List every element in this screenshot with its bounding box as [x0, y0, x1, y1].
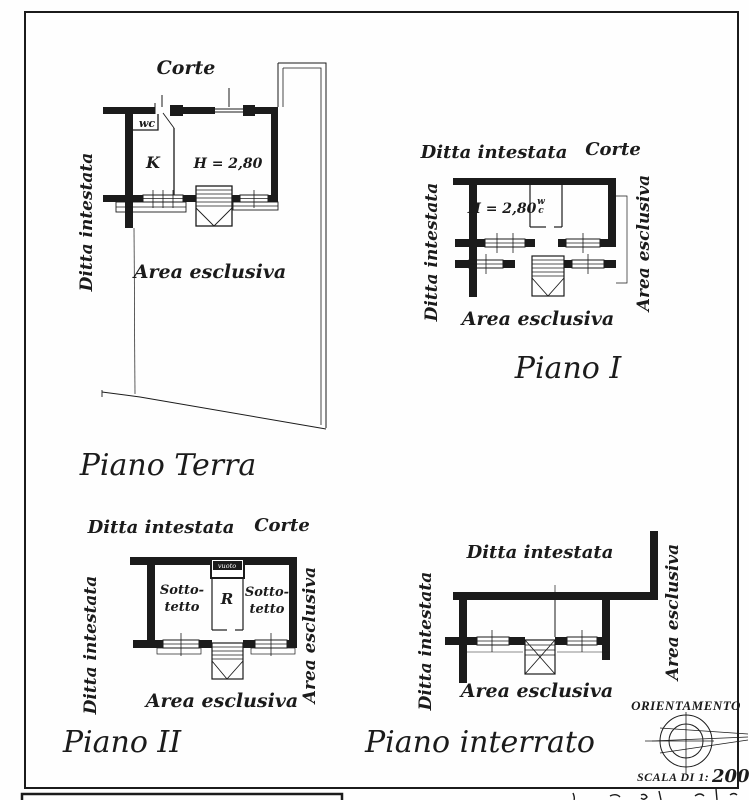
ditta-intestata-left-interrato: Ditta intestata [416, 572, 436, 712]
staircase-piano-interrato [525, 640, 555, 674]
vuoto-label: vuoto [218, 562, 236, 570]
wc-label-primo-line2: c [538, 206, 544, 216]
floor-plan-piano-secondo: Ditta intestata Corte vuoto Sotto- tetto… [62, 515, 320, 760]
ceiling-height-label-terra: H = 2,80 [193, 156, 263, 172]
bottom-cropped-handwriting [573, 789, 737, 800]
scale-label: SCALA DI 1: [637, 770, 709, 784]
staircase-piano-secondo [212, 643, 243, 679]
sottotetto-left-line1: Sotto- [160, 583, 204, 598]
ditta-intestata-top-primo: Ditta intestata [420, 142, 568, 163]
floor-plan-piano-interrato: Ditta intestata Ditta intestata Area esc… [364, 531, 683, 760]
sottotetto-right-line2: tetto [250, 602, 285, 617]
area-esclusiva-bottom-interrato: Area esclusiva [459, 680, 613, 702]
area-esclusiva-right-secondo: Area esclusiva [300, 567, 320, 705]
ditta-intestata-top-secondo: Ditta intestata [87, 517, 235, 538]
floor-plan-piano-terra: Corte wc K H = 2,80 Ditta intestata Area… [77, 57, 326, 483]
area-esclusiva-right-interrato: Area esclusiva [663, 544, 683, 682]
ditta-intestata-left-secondo: Ditta intestata [81, 576, 101, 716]
corte-label-primo: Corte [585, 139, 641, 160]
plan-title-piano-primo: Piano I [514, 351, 623, 386]
plan-title-piano-interrato: Piano interrato [364, 725, 595, 760]
ditta-intestata-top-interrato: Ditta intestata [466, 542, 614, 563]
ceiling-height-label-primo: H = 2,80 [467, 201, 537, 217]
floor-plan-drawing: Corte wc K H = 2,80 Ditta intestata Area… [0, 0, 749, 800]
plan-title-piano-secondo: Piano II [62, 725, 182, 760]
courtyard-boundary-piano-terra [102, 63, 326, 429]
room-r-label: R [220, 590, 233, 608]
sottotetto-right-line1: Sotto- [245, 585, 289, 600]
area-esclusiva-label-terra: Area esclusiva [132, 261, 286, 283]
floor-plan-piano-primo: Ditta intestata Corte H = 2,80 w c Ditta… [420, 139, 654, 386]
area-esclusiva-bottom-primo: Area esclusiva [460, 308, 614, 330]
plan-title-piano-terra: Piano Terra [79, 448, 257, 483]
wc-room-label-terra: wc [139, 117, 155, 130]
sottotetto-left-line2: tetto [165, 600, 200, 615]
scale-value: 200 [711, 766, 749, 787]
orientamento-label: ORIENTAMENTO [631, 698, 741, 713]
staircase-piano-primo [532, 256, 564, 296]
corte-label-secondo: Corte [254, 515, 310, 536]
corte-label-terra: Corte [157, 57, 216, 79]
area-esclusiva-right-primo: Area esclusiva [634, 175, 654, 313]
ditta-intestata-left-terra: Ditta intestata [77, 153, 97, 293]
orientation-block: ORIENTAMENTO SCALA DI 1: 200 [631, 698, 749, 787]
kitchen-room-label: K [145, 153, 161, 172]
staircase-piano-terra [196, 186, 232, 226]
scanned-floor-plan-sheet: Corte wc K H = 2,80 Ditta intestata Area… [0, 0, 749, 800]
bottom-cropped-stamp-box [22, 794, 342, 800]
area-esclusiva-bottom-secondo: Area esclusiva [144, 690, 298, 712]
ditta-intestata-left-primo: Ditta intestata [422, 183, 442, 323]
area-strip-boundary [616, 196, 627, 283]
